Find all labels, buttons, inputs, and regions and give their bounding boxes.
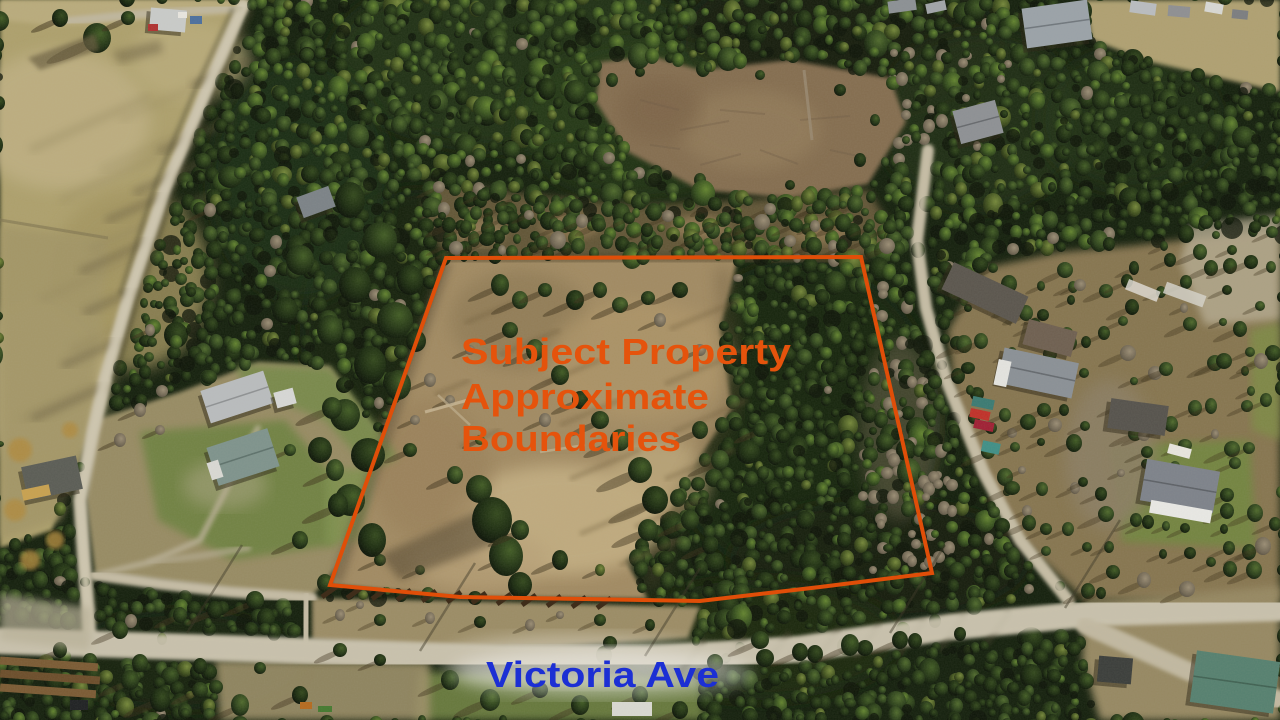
svg-text:Victoria Ave: Victoria Ave: [486, 654, 719, 695]
svg-text:Boundaries: Boundaries: [461, 418, 681, 459]
svg-text:Approximate: Approximate: [461, 376, 709, 417]
svg-text:Subject Property: Subject Property: [461, 331, 792, 372]
